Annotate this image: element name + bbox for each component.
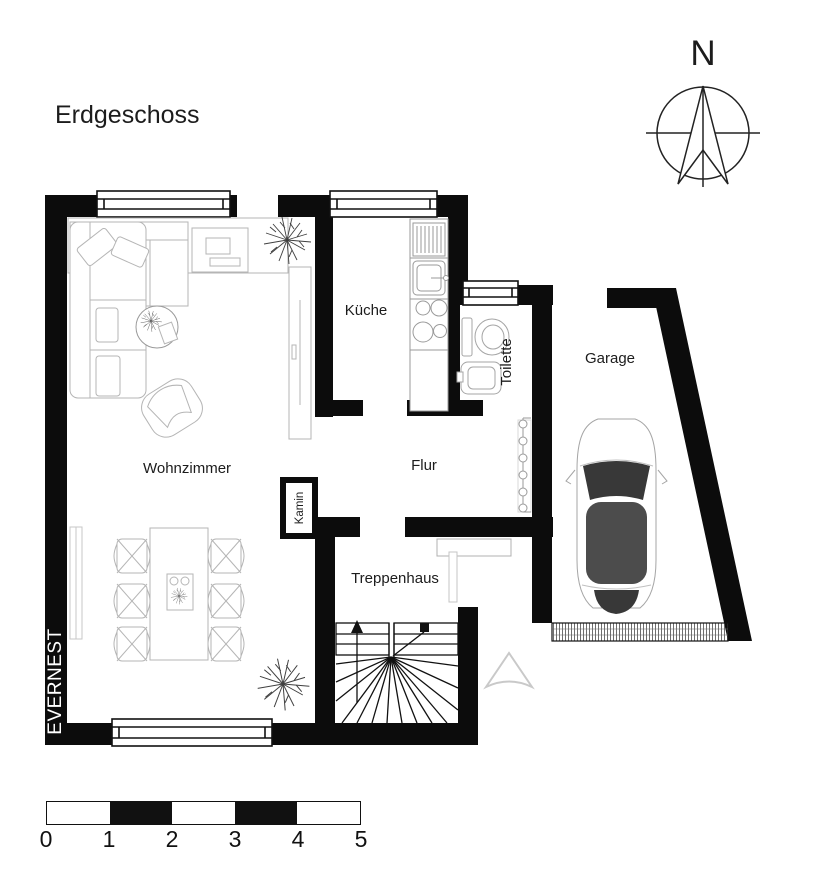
room-label-toilette: Toilette [498, 323, 516, 401]
north-compass-icon [646, 86, 760, 187]
stairs-start-marker [393, 623, 429, 656]
floor-plan-drawing [0, 0, 834, 891]
floor-plan-page: Erdgeschoss N Wohnzimmer Küche Flur Trep… [0, 0, 834, 891]
wall-stairs-left [315, 517, 335, 723]
radiator [70, 527, 82, 639]
drainer [413, 223, 445, 256]
sofa [68, 218, 288, 398]
coffee-table [136, 306, 178, 348]
scale-label-2: 2 [166, 826, 179, 853]
room-label-flur: Flur [411, 458, 437, 473]
page-title: Erdgeschoss [55, 103, 200, 128]
scale-label-4: 4 [292, 826, 305, 853]
wall-living-kitchen [315, 217, 333, 417]
wall-flur-bottom-2 [405, 517, 553, 537]
coat-rack [518, 418, 531, 512]
side-table [192, 228, 248, 272]
plant-bottom-icon [258, 659, 310, 711]
window-living-top [97, 191, 230, 217]
scale-segment [47, 802, 110, 824]
wall-garage-left [532, 305, 552, 623]
window-kitchen-top [330, 191, 437, 217]
kitchen-counter [410, 219, 449, 411]
window-living-bottom [112, 719, 272, 746]
wall-toilette-left [448, 289, 460, 407]
room-label-kamin: Kamin [287, 483, 313, 533]
room-label-wohnzimmer: Wohnzimmer [143, 461, 231, 476]
stairs [336, 620, 458, 723]
scale-label-5: 5 [355, 826, 368, 853]
wall-kitchen-right [448, 217, 468, 289]
room-label-treppenhaus: Treppenhaus [351, 571, 439, 586]
room-label-garage: Garage [585, 351, 635, 366]
window-toilette [463, 281, 518, 305]
scale-label-3: 3 [229, 826, 242, 853]
car [566, 419, 667, 614]
scale-label-0: 0 [40, 826, 53, 853]
sink [413, 261, 449, 295]
entrance-marker-icon [486, 653, 532, 687]
brand-label: EVERNEST [45, 618, 67, 745]
wall-stairs-right [458, 607, 478, 723]
scale-segment [172, 802, 235, 824]
bathroom-sink [457, 362, 501, 394]
scale-bar [46, 801, 361, 825]
garage-door [552, 623, 728, 641]
dining-table [150, 528, 208, 660]
north-label: N [690, 36, 715, 71]
entry-door-leaf [449, 552, 457, 602]
scale-label-1: 1 [103, 826, 116, 853]
scale-segment [297, 802, 360, 824]
scale-segment [235, 802, 298, 824]
sideboard [437, 539, 511, 556]
scale-segment [110, 802, 173, 824]
room-label-kueche: Küche [345, 303, 388, 318]
tall-cabinet [289, 267, 311, 439]
wall-garage-slanted [652, 288, 752, 641]
wall-flur-top-1 [315, 400, 363, 416]
